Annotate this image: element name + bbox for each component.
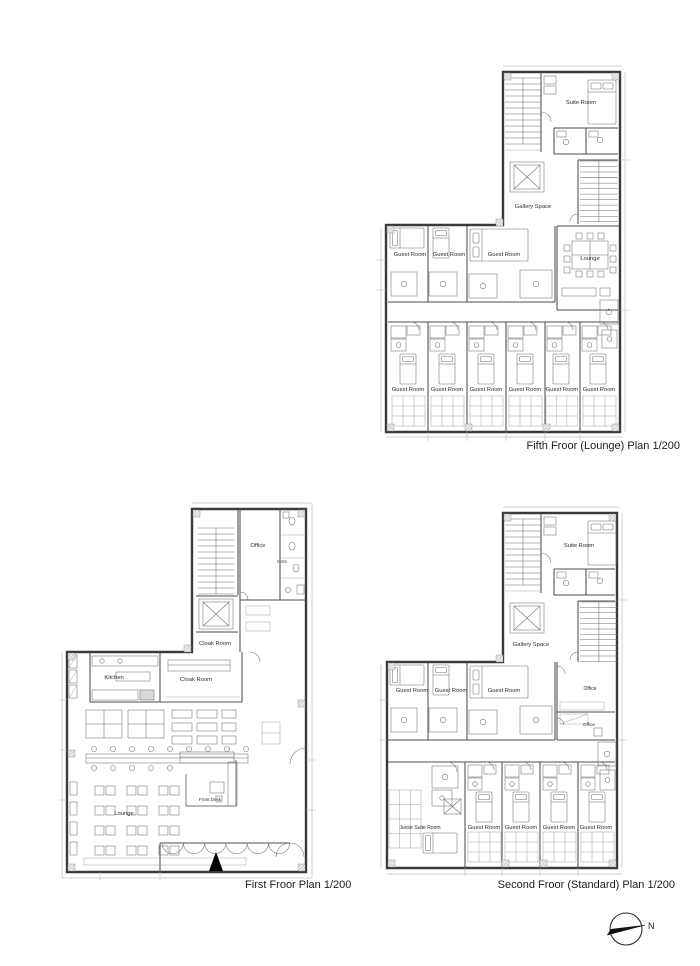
room-label-guest: Guest Room [543,825,576,831]
north-arrow: N [598,908,670,952]
room-label-guest: Guest Room [394,252,427,258]
drawing-sheet: { "plans": { "fifth": { "caption": "Fift… [0,0,700,966]
room-label-guest: Guest Room [468,825,501,831]
caption-fifth-floor: Fifth Froor (Lounge) Plan 1/200 [478,440,680,453]
room-label-office-lower: Office [583,722,595,727]
room-label-office: Office [250,543,265,549]
north-label: N [648,921,655,931]
room-label-office-upper: Office [584,686,597,692]
room-label-gallery: Gallery Space [515,204,551,210]
room-label-guest: Guest Room [392,387,425,393]
room-label-guest: Guest Room [435,688,468,694]
room-label-guest: Guest Room [433,252,466,258]
second-floor-plan: Suite Room Gallery Space Office Office G… [375,495,640,887]
room-label-guest: Guest Room [580,825,613,831]
room-label-junior-suite: Junior Suite Room [399,825,440,831]
room-label-cloak-upper: Cloak Room [199,641,231,647]
room-label-guest: Guest Room [583,387,616,393]
room-label-lounge: Lounge [114,811,133,817]
room-label-guest: Guest Room [488,688,521,694]
room-label-suite: Suite Room [566,100,596,106]
room-label-lounge: Lounge [580,256,599,262]
room-label-guest: Guest Room [470,387,503,393]
room-label-cloak-lower: Cloak Room [180,677,212,683]
room-label-front-desk: Front Desk [199,797,222,802]
room-label-gallery: Gallery Space [513,642,549,648]
caption-first-floor: First Froor Plan 1/200 [245,879,445,892]
room-label-suite: Suite Room [564,543,594,549]
first-outline [67,509,306,872]
room-label-kitchen: Kitchen [104,675,123,681]
room-label-guest: Guest Room [505,825,538,831]
first-floor-plan: Office Cloak Room Kitchen Cloak Room Fro… [55,495,320,887]
caption-second-floor: Second Froor (Standard) Plan 1/200 [473,879,675,892]
illegible-small-label [277,560,287,563]
room-label-guest: Guest Room [488,252,521,258]
room-label-guest: Guest Room [509,387,542,393]
room-label-guest: Guest Room [396,688,429,694]
room-label-guest: Guest Room [546,387,579,393]
room-label-guest: Guest Room [431,387,464,393]
fifth-floor-plan: Suite Room Gallery Space Lounge Guest Ro… [368,56,640,448]
